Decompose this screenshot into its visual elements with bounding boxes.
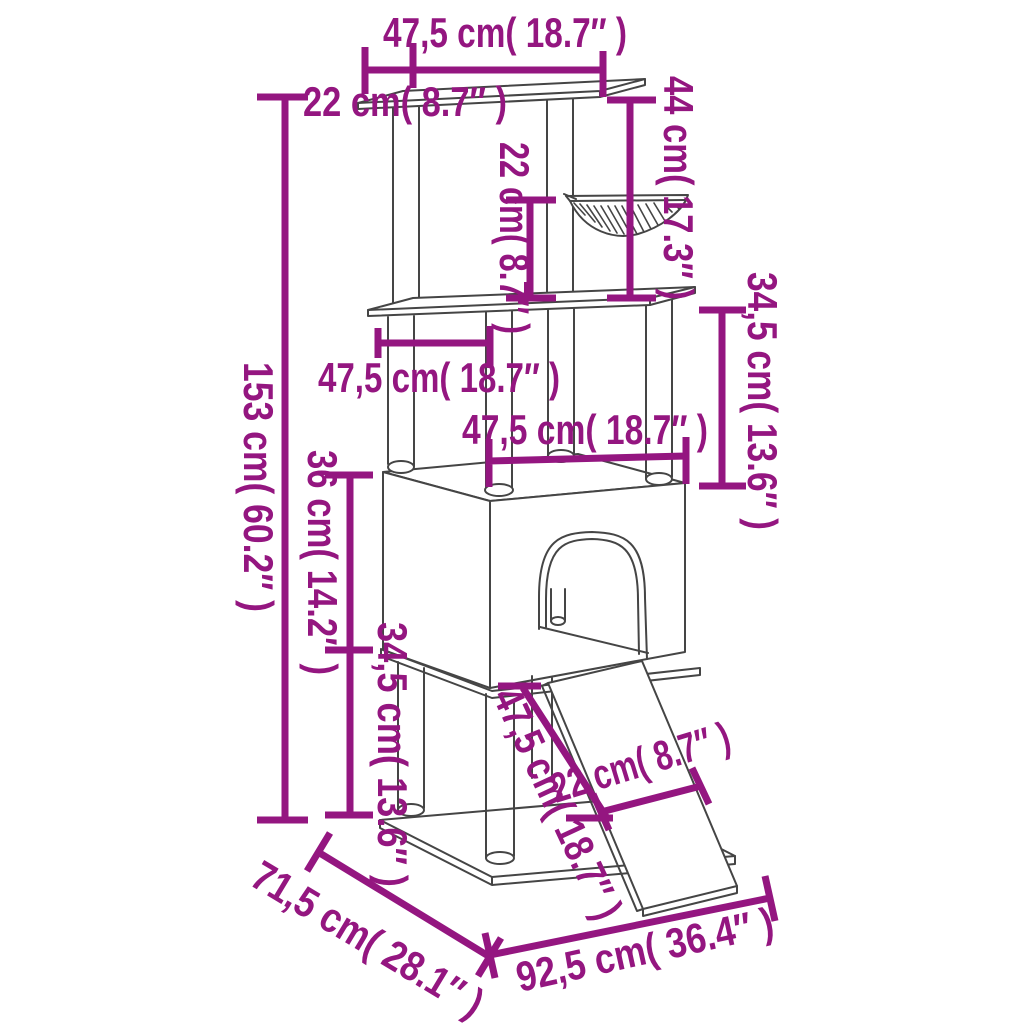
dimension-diagram: 47,5 cm( 18.7″ ) 22 cm( 8.7″ ) 153 cm( 6… xyxy=(0,0,1024,1024)
label-shelf-to-house-height: 34,5 cm( 13.6″ ) xyxy=(739,272,786,530)
dim-house-height: 36 cm( 14.2″ ) xyxy=(299,450,373,675)
diagram-page: 47,5 cm( 18.7″ ) 22 cm( 8.7″ ) 153 cm( 6… xyxy=(0,0,1024,1024)
dim-middle-shelf-width: 47,5 cm( 18.7″ ) xyxy=(318,326,560,401)
label-middle-shelf-width: 47,5 cm( 18.7″ ) xyxy=(318,354,560,401)
dim-overall-height: 153 cm( 60.2″ ) xyxy=(235,97,308,820)
label-base-width: 92,5 cm( 36.4″ ) xyxy=(512,898,778,1001)
label-top-depth: 22 cm( 8.7″ ) xyxy=(303,78,507,125)
house-front-face xyxy=(490,483,685,688)
cat-house xyxy=(381,454,700,698)
label-overall-height: 153 cm( 60.2″ ) xyxy=(235,362,282,612)
dim-top-width-and-depth: 47,5 cm( 18.7″ ) 22 cm( 8.7″ ) xyxy=(303,9,627,125)
mid-post-foot xyxy=(646,473,672,485)
label-top-width: 47,5 cm( 18.7″ ) xyxy=(383,9,627,56)
dim-shelf-to-house-lines xyxy=(699,310,746,486)
label-hammock-drop: 22 cm( 8.7″ ) xyxy=(491,142,538,334)
house-inner-post-foot xyxy=(551,617,565,625)
dim-top-section-height: 44 cm( 17.3″ ) xyxy=(607,76,702,300)
label-lower-section-height: 34,5 cm( 13.6″ ) xyxy=(369,622,416,887)
label-top-section-height: 44 cm( 17.3″ ) xyxy=(655,76,702,300)
bottom-post-foot xyxy=(486,852,514,864)
mid-post-foot xyxy=(388,461,414,473)
dim-shelf-to-house-height: 34,5 cm( 13.6″ ) xyxy=(699,272,786,530)
label-house-top-width: 47,5 cm( 18.7″ ) xyxy=(462,406,708,453)
label-house-height: 36 cm( 14.2″ ) xyxy=(299,450,346,675)
